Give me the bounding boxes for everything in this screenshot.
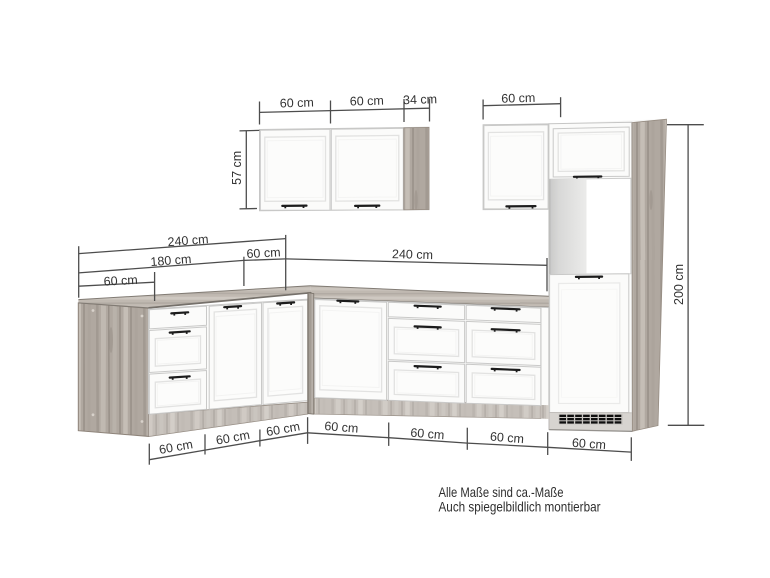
svg-text:Auch spiegelbildlich montierba: Auch spiegelbildlich montierbar <box>439 498 601 514</box>
svg-text:180 cm: 180 cm <box>150 252 192 269</box>
svg-text:60 cm: 60 cm <box>103 273 138 289</box>
svg-text:60 cm: 60 cm <box>350 94 384 109</box>
svg-text:Alle Maße sind ca.-Maße: Alle Maße sind ca.-Maße <box>439 484 564 500</box>
svg-text:60 cm: 60 cm <box>246 245 281 261</box>
svg-text:240 cm: 240 cm <box>167 232 209 249</box>
svg-text:60 cm: 60 cm <box>489 430 524 447</box>
svg-text:200 cm: 200 cm <box>672 264 686 305</box>
svg-text:60 cm: 60 cm <box>410 426 445 443</box>
svg-text:240 cm: 240 cm <box>392 247 433 262</box>
svg-text:60 cm: 60 cm <box>324 419 359 436</box>
svg-text:60 cm: 60 cm <box>280 96 314 111</box>
svg-text:57 cm: 57 cm <box>230 151 244 185</box>
svg-text:60 cm: 60 cm <box>572 436 607 452</box>
svg-text:60 cm: 60 cm <box>501 91 535 106</box>
svg-text:60 cm: 60 cm <box>215 428 251 448</box>
svg-text:60 cm: 60 cm <box>265 419 301 439</box>
svg-text:34 cm: 34 cm <box>403 92 437 107</box>
svg-text:60 cm: 60 cm <box>158 437 194 457</box>
